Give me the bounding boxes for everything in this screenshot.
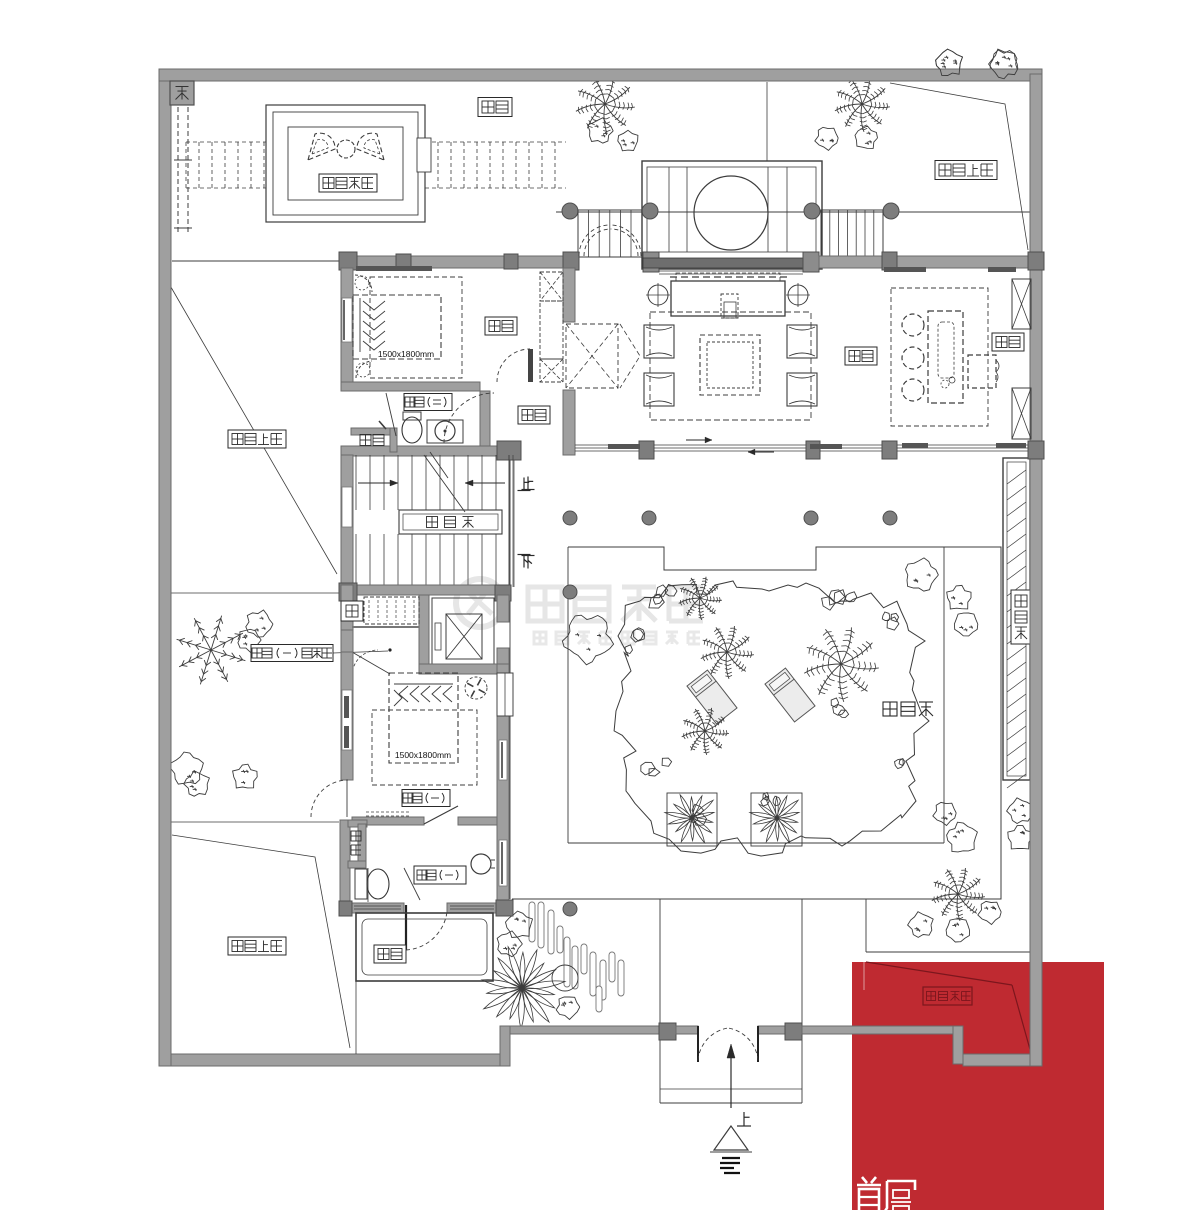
- svg-text:1500x1800mm: 1500x1800mm: [378, 349, 434, 359]
- svg-text:1500x1800mm: 1500x1800mm: [395, 750, 451, 760]
